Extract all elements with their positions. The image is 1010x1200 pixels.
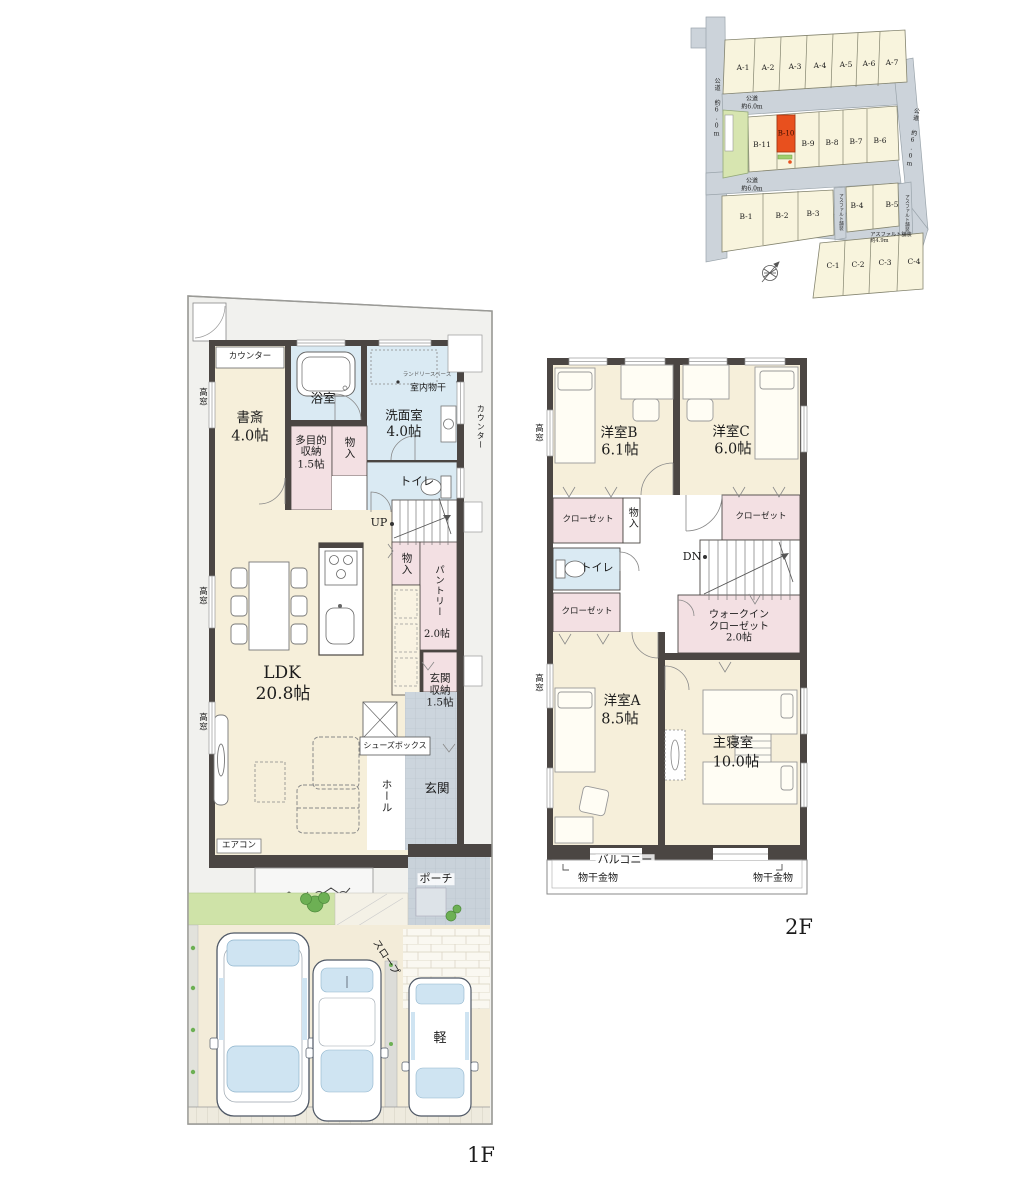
room-c-size: 6.0帖 (714, 442, 752, 457)
room-c-name: 洋室C (712, 425, 749, 439)
toilet-label: トイレ (581, 562, 614, 574)
entrance-storage-l2: 収納 (429, 685, 450, 696)
closet-label: クローゼット (562, 516, 613, 525)
porch-label: ポーチ (418, 873, 455, 885)
lot-label: A-6 (863, 60, 876, 68)
lot-label: B-8 (826, 139, 839, 147)
multi-storage-size: 1.5帖 (297, 460, 324, 471)
lot-label: A-1 (737, 64, 750, 72)
lot-label: B-9 (802, 140, 815, 148)
washroom-name: 洗面室 (385, 408, 423, 421)
floorplan-page: A-1 A-2 A-3 A-4 A-5 A-6 A-7 B-11 B-10 B-… (0, 0, 1010, 1200)
entrance-storage-label: 玄関 収納 1.5帖 (426, 673, 453, 708)
toilet-label: トイレ (400, 475, 435, 487)
lot-label-highlighted: B-10 (778, 130, 795, 137)
floor-1f-graphic (185, 288, 500, 1173)
road-label-left: 公道 約6.0m (713, 78, 719, 139)
tv-board (214, 715, 228, 805)
high-window-label: 高窓 (198, 587, 207, 606)
site-plan: A-1 A-2 A-3 A-4 A-5 A-6 A-7 B-11 B-10 B-… (685, 10, 950, 302)
site-park-structure (725, 115, 733, 151)
lot-label: B-2 (776, 212, 789, 220)
gate (193, 303, 226, 341)
lot-label: A-4 (814, 62, 827, 70)
room-a-size: 8.5帖 (601, 712, 639, 727)
lot-label: A-3 (789, 63, 802, 71)
lot-label: A-7 (886, 59, 899, 67)
lot-label: B-3 (807, 210, 820, 218)
lot-label: A-2 (762, 64, 775, 72)
lot-label: B-1 (740, 213, 753, 221)
lot-label: A-5 (840, 61, 853, 69)
wic-size: 2.0帖 (726, 633, 752, 644)
lot-label: B-6 (874, 137, 887, 145)
floor-plan-2f: 高窓 高窓 洋室B 6.1帖 洋室C 6.0帖 クローゼット 物入 クローゼット… (533, 348, 823, 948)
pantry-size: 2.0帖 (424, 630, 450, 641)
car-large (210, 933, 316, 1116)
road-name: 公道 (746, 179, 758, 185)
storage-label: 物入 (343, 437, 354, 460)
asphalt-label-strip2: アスファルト舗装 (904, 195, 909, 232)
indoor-drying-label: 室内物干 (410, 384, 446, 393)
laundry-space-label: ランドリースペース (403, 373, 452, 379)
high-window-label: 高窓 (534, 674, 543, 693)
site-b10-marker (788, 160, 792, 164)
asphalt-label-strip1: アスファルト舗装 (838, 194, 843, 231)
balcony-label: バルコニー (596, 854, 655, 866)
car-sedan (306, 960, 388, 1121)
drying-hardware-label: 物干金物 (753, 874, 793, 885)
lot-label: B-4 (851, 202, 864, 210)
room-b-size: 6.1帖 (601, 443, 639, 458)
cross-box (363, 702, 397, 738)
up-marker-dot (390, 522, 394, 526)
high-window-label: 高窓 (198, 713, 207, 732)
study-name: 書斎 (237, 411, 264, 425)
floor-2f-graphic (533, 348, 823, 948)
wic-label: ウォークイン クローゼット 2.0帖 (709, 610, 769, 644)
room-a-name: 洋室A (604, 694, 641, 708)
master-size: 10.0帖 (713, 755, 760, 770)
closet-label: クローゼット (561, 608, 612, 617)
lot-label: C-2 (851, 261, 864, 269)
washroom-size: 4.0帖 (387, 425, 422, 439)
road-label-top: 公道 約6.0m (741, 97, 762, 112)
lot-label: B-11 (753, 141, 771, 149)
storage-label: 物入 (400, 553, 411, 576)
kei-car-label: 軽 (433, 1032, 446, 1046)
dresser (665, 730, 685, 780)
floor-2f-title: 2F (785, 916, 813, 938)
lot-label: B-5 (886, 201, 899, 209)
counter-right-label: カウンター (476, 405, 484, 450)
lot-label: C-3 (878, 259, 891, 267)
floor-1f-title: 1F (467, 1144, 495, 1166)
entrance-storage-l1: 玄関 (429, 673, 450, 684)
ldk-size: 20.8帖 (256, 686, 311, 704)
lot-label: B-7 (850, 138, 863, 146)
shoes-box-label: シューズボックス (363, 742, 426, 750)
road-width: 約6.0m (741, 105, 762, 111)
storage-label: 物入 (626, 507, 637, 529)
bathtub (297, 352, 355, 396)
drying-hardware-label: 物干金物 (578, 874, 618, 885)
dn-marker-dot (703, 555, 707, 559)
slope (335, 893, 408, 929)
site-b10-planting (778, 155, 792, 159)
high-window-label: 高窓 (198, 388, 207, 407)
compass-icon (762, 262, 779, 282)
aircon-label: エアコン (222, 842, 256, 851)
lot-label: C-4 (907, 258, 920, 266)
hall-label: ホール (380, 779, 391, 814)
porch-wall-band (408, 844, 492, 857)
pantry-name: パントリー (433, 565, 443, 618)
road-label-mid: 公道 約6.0m (741, 179, 762, 194)
multi-storage-name: 多目的収納 (293, 435, 329, 457)
master-name: 主寝室 (713, 736, 754, 750)
wic-l2: クローゼット (709, 622, 769, 633)
kitchen (319, 543, 363, 655)
closet-label: クローゼット (735, 513, 786, 522)
entrance-label: 玄関 (424, 781, 449, 794)
drying-dot (396, 380, 399, 383)
asphalt-width: 約4.9m (870, 240, 888, 245)
ldk-name: LDK (263, 665, 301, 683)
up-label: UP (371, 517, 388, 529)
multi-storage-label: 多目的収納 1.5帖 (293, 435, 329, 470)
room-b-name: 洋室B (601, 426, 638, 440)
road-width: 約6.0m (741, 187, 762, 193)
study-size: 4.0帖 (231, 429, 269, 444)
entrance-storage-size: 1.5帖 (426, 698, 453, 709)
bath-label: 浴室 (310, 391, 335, 404)
vanity (441, 406, 456, 442)
road-name: 公道 (746, 97, 758, 103)
dining-set (231, 562, 307, 650)
counter-label: カウンター (229, 353, 272, 362)
dn-label: DN (683, 551, 701, 563)
wic-l1: ウォークイン (709, 610, 769, 621)
high-window-label: 高窓 (534, 424, 543, 443)
car-kei (402, 978, 478, 1116)
lot-label: C-1 (826, 262, 839, 270)
floor-plan-1f: カウンター 高窓 高窓 高窓 書斎 4.0帖 浴室 ランドリースペース 室内物干… (185, 288, 500, 1173)
asphalt-label-horizontal: アスファルト舗装 約4.9m (870, 233, 912, 245)
